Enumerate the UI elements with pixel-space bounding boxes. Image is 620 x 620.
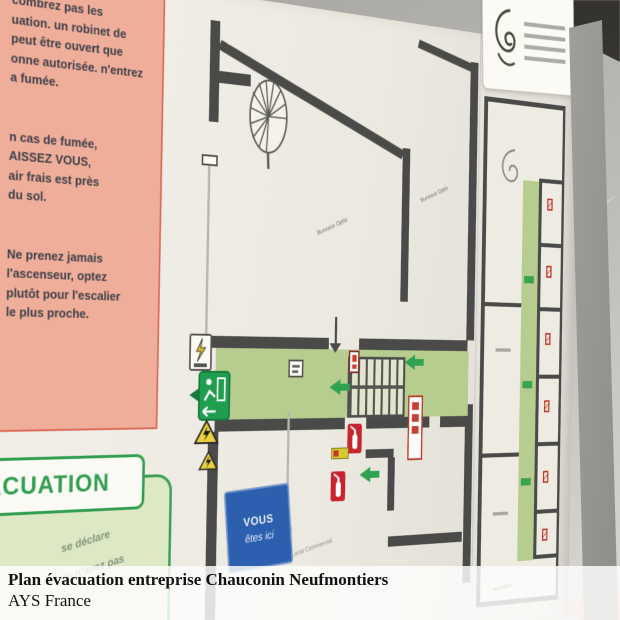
room-text-blur (496, 348, 511, 351)
safety-instructions-panel: * combrez pas les uation. un robinet de … (0, 0, 166, 432)
door-marker (202, 154, 218, 166)
door-icon (545, 333, 551, 345)
room-label: Bureaux Optis (317, 217, 349, 237)
wall-segment (206, 336, 329, 350)
you-are-here-line2: êtes ici (245, 528, 274, 545)
exit-direction-pendant (189, 388, 200, 403)
wall-segment (359, 338, 468, 351)
caption-bar: Plan évacuation entreprise Chauconin Neu… (0, 566, 620, 620)
evacuation-header-label: ACUATION (0, 469, 110, 502)
logo-swirl-icon (489, 1, 519, 74)
evacuation-arrow-icon (405, 355, 424, 370)
room-text-blur (493, 512, 508, 516)
wall-segment (535, 442, 558, 447)
evacuation-header-tab: ACUATION (0, 454, 145, 518)
wall-segment (387, 457, 395, 511)
door-icon (547, 198, 553, 210)
wall-segment (485, 302, 521, 307)
door-icon (544, 400, 550, 412)
caption-title: Plan évacuation entreprise Chauconin Neu… (8, 569, 620, 590)
room-label: Bureaux Optis (420, 185, 449, 204)
panel-text-fragment: se déclare (60, 529, 111, 555)
electrical-cutoff-sign (189, 334, 212, 371)
you-are-here-marker: VOUS êtes ici (224, 483, 293, 574)
fire-extinguisher-icon (347, 424, 362, 454)
exit-chip-icon (521, 478, 531, 486)
emergency-exit-icon (199, 373, 229, 419)
wall-segment (214, 418, 344, 432)
entry-arrow-head (329, 343, 341, 353)
instructions-paragraph-2: n cas de fumée, AISSEZ VOUS, air frais e… (8, 126, 153, 213)
fire-alarm-sign (349, 350, 360, 373)
door-icon (543, 471, 549, 483)
you-are-here-line1: VOUS (243, 511, 274, 529)
instructions-paragraph-3: Ne prenez jamais l'ascenseur, optez plut… (6, 244, 151, 325)
wall-segment-diagonal (418, 40, 476, 74)
wall-segment (538, 243, 561, 248)
warning-triangle-icon (193, 419, 219, 445)
spiral-staircase-icon (244, 69, 295, 173)
evacuation-arrow-icon (329, 379, 349, 395)
area-label: Local Commercial (291, 538, 332, 559)
asterisk-mark: * (106, 0, 118, 1)
small-plan-sign (288, 360, 303, 378)
exit-chip-icon (524, 276, 534, 284)
wall-segment (440, 416, 468, 427)
entry-arrow-icon (335, 317, 338, 345)
door-icon (546, 266, 552, 278)
fire-extinguisher-icon (330, 471, 345, 501)
logo-text-blur (524, 21, 565, 63)
wall-segment (533, 553, 556, 559)
photo-evacuation-plan: * combrez pas les uation. un robinet de … (0, 0, 620, 620)
ria-sign (407, 395, 423, 460)
exit-chip-icon (522, 381, 532, 388)
wall-segment (388, 532, 462, 547)
evacuation-arrow-icon (360, 466, 380, 482)
manual-call-point-icon (331, 447, 349, 459)
wall-segment (537, 307, 560, 312)
instructions-paragraph-1: combrez pas les uation. un robinet de pe… (10, 0, 155, 102)
wall-segment (400, 148, 410, 302)
caption-subtitle: AYS France (8, 590, 620, 611)
wall-segment (536, 375, 559, 379)
wall-segment (539, 178, 562, 184)
partition-line (205, 163, 211, 348)
evacuation-plan-board: * combrez pas les uation. un robinet de … (0, 0, 577, 620)
door-icon (542, 528, 548, 540)
wall-segment (482, 452, 519, 457)
wall-segment (534, 509, 557, 514)
secondary-floor-plan (476, 96, 565, 608)
issuer-logo-card (482, 0, 575, 97)
plan-scribble-icon (496, 143, 523, 191)
warning-triangle-icon (198, 450, 219, 471)
